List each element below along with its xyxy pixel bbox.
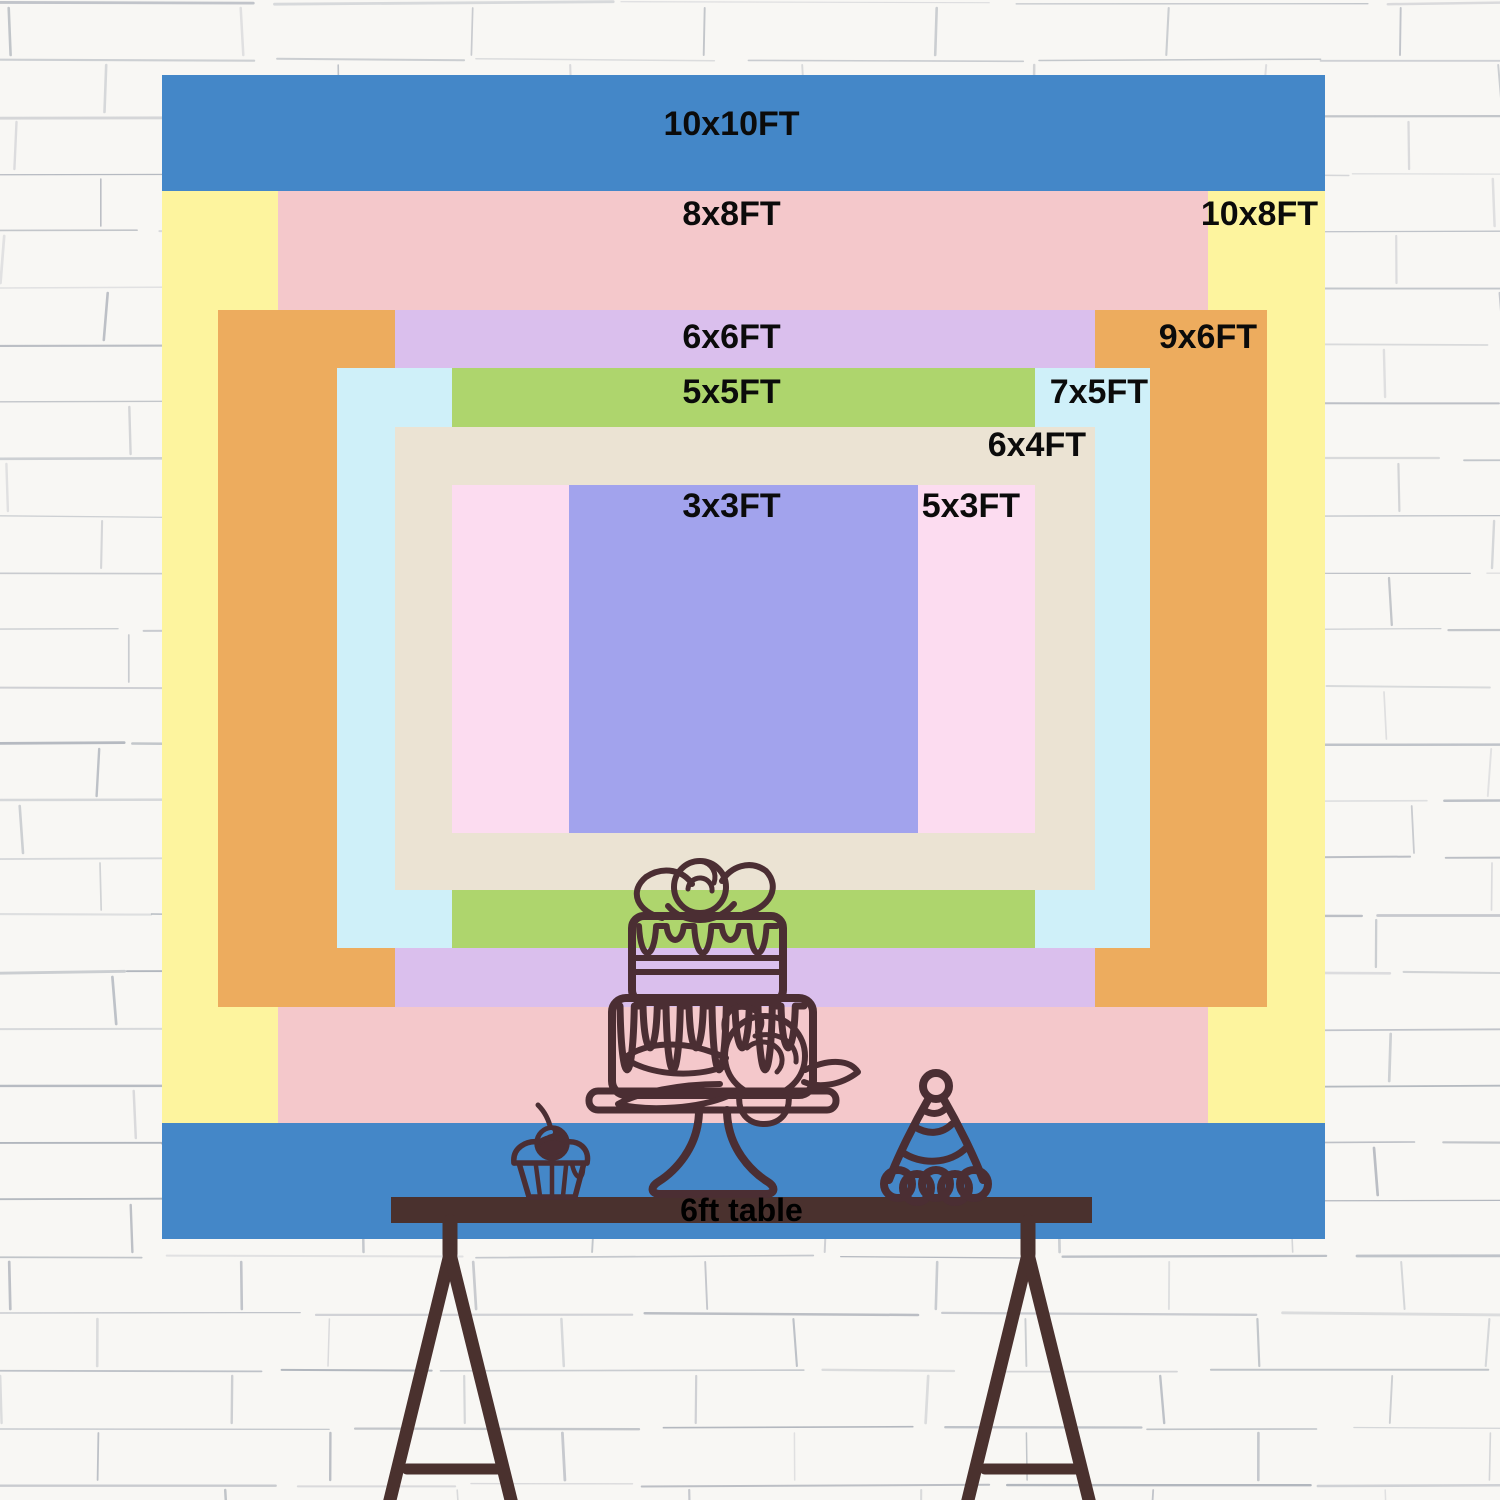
party-hat-illustration: [884, 1073, 988, 1202]
table-length-label: 6ft table: [391, 1194, 1092, 1226]
cupcake-illustration: [514, 1105, 588, 1197]
table-and-cake-artwork: [0, 0, 1500, 1500]
table-left-leg: [389, 1222, 512, 1500]
table-right-leg: [967, 1222, 1090, 1500]
backdrop-size-chart: 10x10FT 10x8FT 8x8FT 9x6FT 6x6FT 7x5FT 5…: [0, 0, 1500, 1500]
cake-illustration: [589, 861, 858, 1194]
